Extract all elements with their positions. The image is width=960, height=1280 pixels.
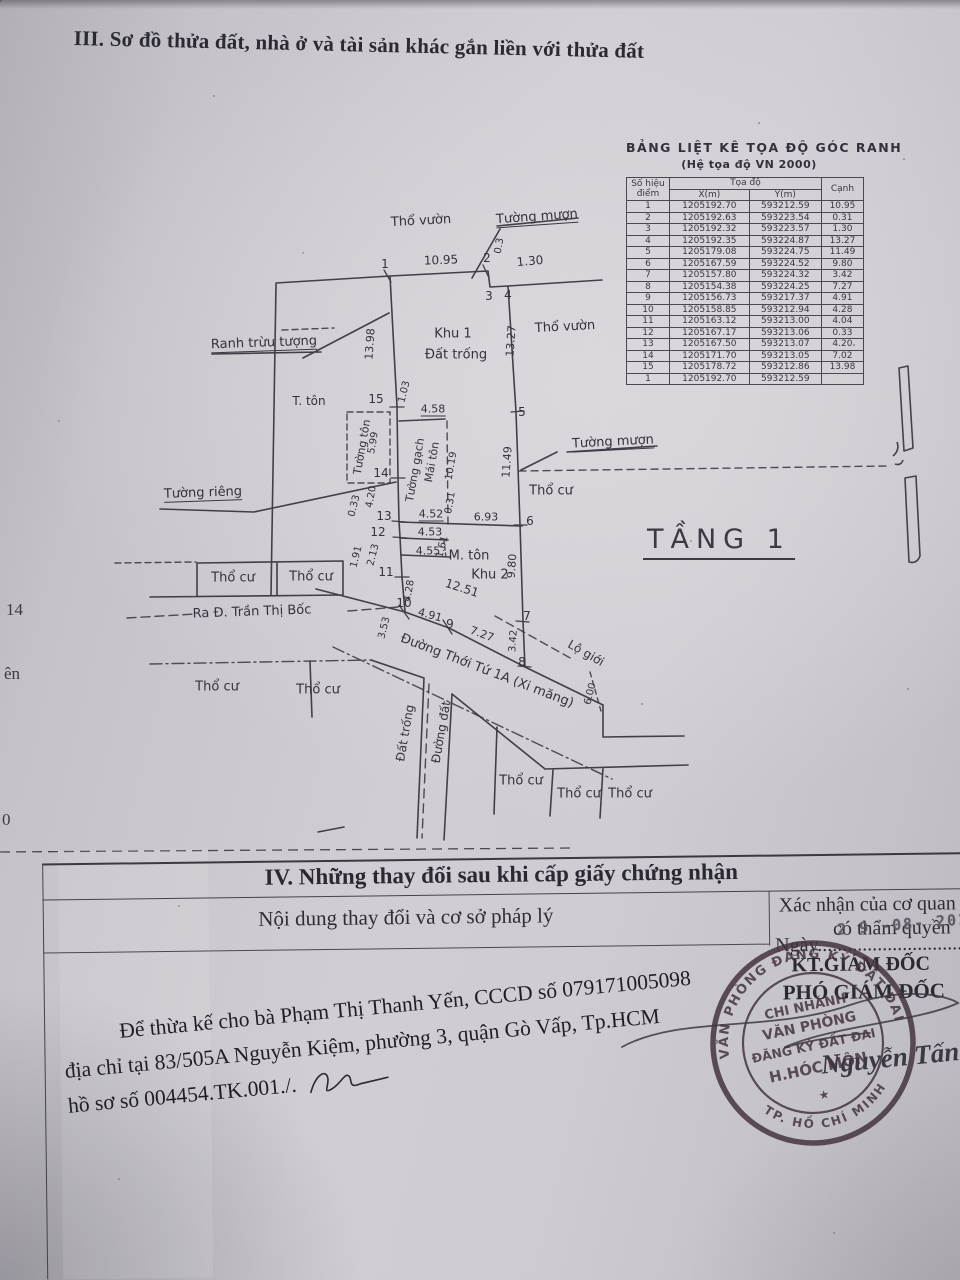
diagram-label: 11 <box>378 566 393 578</box>
diagram-label: 4.20 <box>365 485 379 509</box>
table-cell: 593224.75 <box>749 247 821 259</box>
margin-artifact: 0 <box>2 810 11 830</box>
table-cell: 14 <box>627 350 670 362</box>
diagram-label: 13.98 <box>363 328 376 360</box>
table-cell: 4.91 <box>821 293 863 305</box>
scanned-land-certificate-page: { "page": { "section3_title": "III. Sơ đ… <box>0 0 960 1280</box>
table-cell: 6 <box>627 258 670 270</box>
table-cell: 593224.87 <box>749 235 821 247</box>
table-cell: 1205167.17 <box>669 327 749 339</box>
top-boundary-line <box>276 271 602 287</box>
diagram-label: Thổ cư <box>608 788 652 801</box>
table-cell: 7.02 <box>821 350 863 362</box>
diagram-label: Thổ vườn <box>390 213 451 229</box>
table-cell: 4.20 <box>821 339 863 351</box>
table-row: 131205167.50593213.074.20 <box>627 339 864 351</box>
official-stamp: VĂN PHÒNG ĐĂNG KÝ ĐẤT ĐAI TP. HỒ CHÍ MIN… <box>698 928 928 1158</box>
table-cell: 1205179.08 <box>669 247 749 259</box>
table-cell: 0.33 <box>821 327 863 339</box>
diagram-label: 6.93 <box>474 512 499 523</box>
diagram-label: Khu 2 <box>471 569 508 582</box>
table-row: 71205157.80593224.323.42 <box>627 270 864 282</box>
diagram-label: 10.95 <box>424 253 459 266</box>
table-cell: 593224.52 <box>749 258 821 270</box>
table-cell: 7.27 <box>821 281 863 293</box>
table-row: 11205192.70593212.59 <box>627 373 864 385</box>
diagram-label: M. tôn <box>449 550 490 563</box>
diagram-label: 3.53 <box>377 616 392 640</box>
diagram-label: Ranh trừu tượng <box>211 335 318 354</box>
table-cell: 1205192.70 <box>669 201 749 213</box>
table-cell <box>821 373 863 385</box>
table-row: 61205167.59593224.529.80 <box>627 258 864 270</box>
diagram-label: 2 <box>483 252 491 264</box>
table-cell: 15 <box>627 362 670 374</box>
table-cell: 593212.86 <box>749 362 821 374</box>
road-edge-symbol <box>893 366 920 562</box>
diagram-label: 6.00 <box>583 682 598 706</box>
table-cell: 593212.94 <box>749 304 821 316</box>
table-row: 141205171.70593213.057.02 <box>627 350 864 362</box>
table-cell: 1205192.35 <box>669 235 749 247</box>
handwritten-initial <box>300 1059 393 1101</box>
table-cell: 4.04 <box>821 316 863 328</box>
diagram-label: Thổ cư <box>289 571 333 584</box>
table-cell: 1.30 <box>821 224 863 236</box>
diagram-label: 1 <box>381 258 389 270</box>
table-cell: 9 <box>627 293 670 305</box>
table-row: 21205192.63593223.540.31 <box>627 212 864 224</box>
table-row: 91205156.73593217.374.91 <box>627 293 864 305</box>
table-cell: 1 <box>627 373 670 385</box>
diagram-label: Đường đất <box>430 700 453 764</box>
diagram-label: 0.3 <box>494 237 507 254</box>
diagram-label: 5.99 <box>367 431 381 455</box>
table-row: 111205163.12593213.004.04 <box>627 316 864 328</box>
table-cell: 13.27 <box>821 235 863 247</box>
table-cell: 593224.32 <box>749 270 821 282</box>
diagram-label: 9 <box>446 618 454 630</box>
table-cell: 593213.07 <box>749 339 821 351</box>
margin-artifact: ên <box>4 664 20 684</box>
diagram-label: Mái tôn <box>423 441 441 483</box>
diagram-label: Tường gạch <box>404 437 426 503</box>
diagram-label: 4.55 <box>416 546 441 557</box>
table-cell: 7 <box>627 270 670 282</box>
diagram-label: Thổ cư <box>211 572 255 585</box>
diagram-label: Thổ vườn <box>534 319 595 335</box>
col-header-edge: Cạnh <box>821 178 863 201</box>
table-cell: 1205154.38 <box>669 281 749 293</box>
diagram-label: 7.27 <box>469 625 496 644</box>
table-cell: 3 <box>627 224 670 236</box>
table-cell: 593223.57 <box>749 224 821 236</box>
table-cell: 1205156.73 <box>669 293 749 305</box>
table-cell: 1205178.72 <box>669 362 749 374</box>
table-row: 51205179.08593224.7511.49 <box>627 247 864 259</box>
col-header-x: X(m) <box>669 189 749 201</box>
diagram-label: 4 <box>504 289 512 301</box>
diagram-label: 3.42 <box>508 630 520 653</box>
table-cell: 593212.59 <box>749 201 821 213</box>
diagram-label: 1.91 <box>349 545 364 569</box>
table-cell: 2 <box>627 212 670 224</box>
table-cell: 11.49 <box>821 247 863 259</box>
diagram-label: 2.13 <box>366 543 381 567</box>
diagram-label: 3 <box>485 290 493 302</box>
diagram-label: T. tôn <box>292 395 325 407</box>
table-cell: 593217.37 <box>749 293 821 305</box>
table-cell: 4.28 <box>821 304 863 316</box>
table-cell: 1 <box>627 201 670 213</box>
col-header-coords: Tọa độ <box>669 178 821 190</box>
diagram-label: 13.27 <box>504 325 517 357</box>
diagram-label: Thổ cư <box>296 684 340 697</box>
table-row: 81205154.38593224.257.27 <box>627 281 864 293</box>
table-cell: 1205163.12 <box>669 316 749 328</box>
table-cell: 1205158.85 <box>669 304 749 316</box>
diagram-label: Thổ cư <box>529 485 573 498</box>
table-cell: 1205171.70 <box>669 350 749 362</box>
west-boundary-line <box>390 276 405 612</box>
table-cell: 593213.06 <box>749 327 821 339</box>
diagram-label: Thổ cư <box>195 681 239 694</box>
table-cell: 12 <box>627 327 670 339</box>
table-cell: 4 <box>627 235 670 247</box>
diagram-label: 10.19 <box>445 451 460 481</box>
paper-specks <box>0 0 2 2</box>
margin-artifact: 14 <box>6 600 23 620</box>
diagram-label: 15 <box>368 393 383 405</box>
table-cell: 1205192.70 <box>669 373 749 385</box>
diagram-label: Tường mượn <box>572 433 655 452</box>
diagram-label: Tường mượn <box>496 208 579 229</box>
diagram-label: 14 <box>373 467 388 479</box>
coordinates-table-subtitle: (Hệ tọa độ VN 2000) <box>626 158 872 171</box>
table-row: 41205192.35593224.8713.27 <box>627 235 864 247</box>
diagram-label: 8 <box>518 656 526 668</box>
diagram-label: 1.03 <box>397 380 412 404</box>
diagram-label: 4.58 <box>421 404 446 417</box>
diagram-label: Tường riêng <box>164 485 243 503</box>
table-cell: 13.98 <box>821 362 863 374</box>
diagram-label: 4.52 <box>419 509 444 522</box>
floor-label: TẦNG 1 <box>643 524 795 560</box>
table-row: 31205192.32593223.571.30 <box>627 224 864 236</box>
table-cell: 1205167.50 <box>669 339 749 351</box>
diagram-label: 7 <box>523 610 531 622</box>
diagram-label: 0.33 <box>347 494 362 518</box>
table-row: 121205167.17593213.060.33 <box>627 327 864 339</box>
table-cell: 593223.54 <box>749 212 821 224</box>
diagram-label: Lộ giới <box>566 638 606 668</box>
table-row: 151205178.72593212.8613.98 <box>627 362 864 374</box>
section3-title: III. Sơ đồ thửa đất, nhà ở và tài sản kh… <box>73 26 733 66</box>
table-cell: 3.42 <box>821 270 863 282</box>
diagram-label: 6 <box>526 515 534 527</box>
diagram-label: Đất trống <box>425 349 487 362</box>
col-header-point: Số hiệu điểm <box>627 178 670 201</box>
table-cell: 10.95 <box>821 201 863 213</box>
table-row: 11205192.70593212.5910.95 <box>627 201 864 213</box>
table-cell: 13 <box>627 339 670 351</box>
table-cell: 1205192.63 <box>669 212 749 224</box>
table-cell: 9.80 <box>821 258 863 270</box>
diagram-label: 4.91 <box>417 606 444 623</box>
diagram-label: 12 <box>370 526 385 538</box>
table-cell: 10 <box>627 304 670 316</box>
coordinates-table: BẢNG LIỆT KÊ TỌA ĐỘ GÓC RANH (Hệ tọa độ … <box>626 140 872 385</box>
diagram-label: Khu 1 <box>434 328 471 341</box>
diagram-label: 1.30 <box>516 254 544 268</box>
road-north-edge <box>316 589 603 705</box>
coordinates-table-title: BẢNG LIỆT KÊ TỌA ĐỘ GÓC RANH <box>626 140 872 155</box>
diagram-label: Đất trống <box>394 704 416 763</box>
diagram-label: Thổ cư <box>499 775 543 788</box>
table-cell: 0.31 <box>821 212 863 224</box>
diagram-label: Đường Thới Tứ 1A (Xi măng) <box>399 632 576 710</box>
table-cell: 1205192.32 <box>669 224 749 236</box>
diagram-label: 0.31 <box>444 491 458 515</box>
table-cell: 593213.05 <box>749 350 821 362</box>
table-cell: 11 <box>627 316 670 328</box>
col-header-y: Y(m) <box>749 189 821 201</box>
diagram-label: 13 <box>376 510 391 522</box>
stamp-star: ★ <box>817 1087 830 1103</box>
table-cell: 593224.25 <box>749 281 821 293</box>
table-cell: 593213.00 <box>749 316 821 328</box>
table-cell: 8 <box>627 281 670 293</box>
table-row: 101205158.85593212.944.28 <box>627 304 864 316</box>
diagram-label: 10 <box>396 597 411 609</box>
diagram-label: Thổ cư <box>557 788 601 801</box>
table-cell: 5 <box>627 247 670 259</box>
table-cell: 1205167.59 <box>669 258 749 270</box>
table-cell: 1205157.80 <box>669 270 749 282</box>
diagram-label: 5 <box>518 406 526 418</box>
table-cell: 593212.59 <box>749 373 821 385</box>
diagram-label: Ra Đ. Trần Thị Bốc <box>192 603 311 620</box>
diagram-label: 11.49 <box>500 446 513 478</box>
